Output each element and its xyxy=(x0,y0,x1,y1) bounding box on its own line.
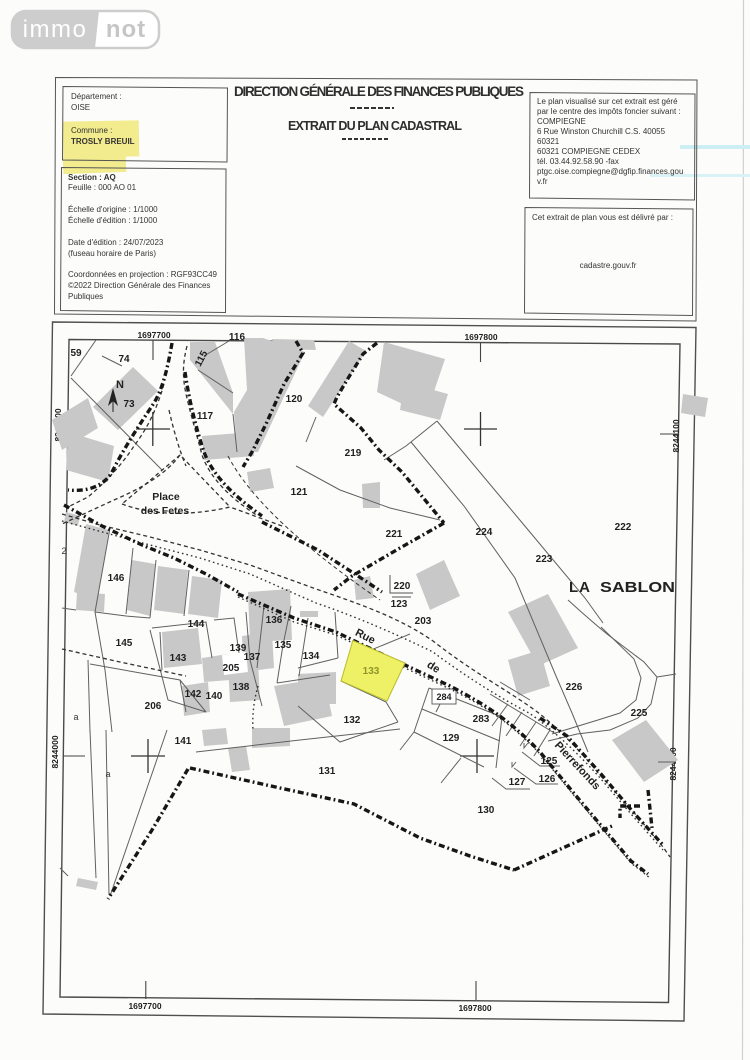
svg-text:74: 74 xyxy=(118,354,130,365)
svg-text:Coordonnées en projection : RG: Coordonnées en projection : RGF93CC49 xyxy=(68,270,218,279)
svg-text:205: 205 xyxy=(223,663,240,674)
svg-text:120: 120 xyxy=(286,394,303,405)
svg-text:not: not xyxy=(106,16,146,43)
svg-text:223: 223 xyxy=(536,554,553,565)
svg-text:126: 126 xyxy=(539,774,556,785)
svg-text:Échelle d'origine : 1/1000: Échelle d'origine : 1/1000 xyxy=(68,205,158,214)
svg-text:60321 COMPIEGNE CEDEX: 60321 COMPIEGNE CEDEX xyxy=(537,147,641,156)
svg-text:137: 137 xyxy=(244,652,261,663)
svg-text:221: 221 xyxy=(386,529,403,540)
svg-text:132: 132 xyxy=(344,715,361,726)
svg-text:283: 283 xyxy=(473,714,490,725)
svg-text:Date d'édition : 24/07/2023: Date d'édition : 24/07/2023 xyxy=(68,238,164,247)
svg-text:N: N xyxy=(116,379,124,391)
svg-text:8244000: 8244000 xyxy=(50,735,60,768)
svg-text:123: 123 xyxy=(391,599,408,610)
svg-text:Publiques: Publiques xyxy=(68,292,103,301)
svg-text:127: 127 xyxy=(509,777,526,788)
svg-text:ptgc.oise.compiegne@dgfip.fina: ptgc.oise.compiegne@dgfip.finances.gou xyxy=(537,167,683,176)
svg-text:v.fr: v.fr xyxy=(537,177,548,186)
svg-text:OISE: OISE xyxy=(71,103,90,112)
svg-text:225: 225 xyxy=(631,708,648,719)
svg-text:8244100: 8244100 xyxy=(671,419,681,452)
svg-text:117: 117 xyxy=(197,411,214,422)
svg-text:220: 220 xyxy=(394,581,411,592)
svg-text:134: 134 xyxy=(303,651,320,662)
svg-text:1697700: 1697700 xyxy=(137,330,170,340)
svg-text:73: 73 xyxy=(123,399,135,410)
svg-text:EXTRAIT DU PLAN CADASTRAL: EXTRAIT DU PLAN CADASTRAL xyxy=(288,119,462,133)
svg-text:206: 206 xyxy=(145,701,162,712)
svg-text:DIRECTION GÉNÉRALE DES FINANCE: DIRECTION GÉNÉRALE DES FINANCES PUBLIQUE… xyxy=(234,84,524,99)
svg-text:226: 226 xyxy=(566,682,583,693)
svg-text:©2022 Direction Générale des F: ©2022 Direction Générale des Finances xyxy=(68,281,210,290)
svg-text:284: 284 xyxy=(436,692,451,702)
svg-text:1697700: 1697700 xyxy=(128,1001,161,1011)
svg-text:141: 141 xyxy=(175,736,192,747)
svg-text:Échelle d'édition : 1/1000: Échelle d'édition : 1/1000 xyxy=(68,216,158,225)
svg-text:1697800: 1697800 xyxy=(464,332,497,342)
svg-text:222: 222 xyxy=(615,522,632,533)
svg-text:LA: LA xyxy=(569,579,590,596)
svg-text:Commune :: Commune : xyxy=(71,126,112,135)
svg-text:Place: Place xyxy=(152,491,180,503)
svg-text:(fuseau horaire de Paris): (fuseau horaire de Paris) xyxy=(68,249,156,258)
svg-text:121: 121 xyxy=(291,487,308,498)
svg-text:145: 145 xyxy=(116,638,133,649)
svg-text:129: 129 xyxy=(443,733,460,744)
svg-text:Département :: Département : xyxy=(71,92,122,101)
svg-text:142: 142 xyxy=(185,689,202,700)
svg-text:133: 133 xyxy=(363,666,380,677)
svg-text:203: 203 xyxy=(415,616,432,627)
svg-text:des Fetes: des Fetes xyxy=(141,505,190,517)
svg-text:par le centre des impôts fonci: par le centre des impôts foncier suivant… xyxy=(537,107,681,116)
svg-text:125: 125 xyxy=(541,756,558,767)
svg-text:135: 135 xyxy=(275,640,292,651)
svg-text:2: 2 xyxy=(61,546,66,556)
svg-text:COMPIEGNE: COMPIEGNE xyxy=(537,117,586,126)
svg-text:116: 116 xyxy=(229,332,246,343)
svg-text:a: a xyxy=(73,712,78,722)
svg-text:130: 130 xyxy=(478,805,495,816)
svg-text:immo: immo xyxy=(23,16,88,43)
svg-text:tél. 03.44.92.58.90 -fax: tél. 03.44.92.58.90 -fax xyxy=(537,157,619,166)
svg-text:140: 140 xyxy=(206,691,223,702)
svg-text:59: 59 xyxy=(70,348,82,359)
svg-text:138: 138 xyxy=(233,682,250,693)
svg-text:6 Rue Winston Churchill C.S. 4: 6 Rue Winston Churchill C.S. 40055 xyxy=(537,127,666,136)
svg-text:SABLON: SABLON xyxy=(600,579,675,596)
svg-text:136: 136 xyxy=(266,615,283,626)
svg-text:Section : AQ: Section : AQ xyxy=(68,173,116,182)
svg-text:60321: 60321 xyxy=(537,137,560,146)
svg-text:1697800: 1697800 xyxy=(458,1003,491,1013)
svg-text:224: 224 xyxy=(476,527,493,538)
svg-text:Le plan visualisé sur cet extr: Le plan visualisé sur cet extrait est gé… xyxy=(537,97,678,106)
svg-text:131: 131 xyxy=(319,766,336,777)
svg-text:Cet extrait de plan vous est d: Cet extrait de plan vous est délivré par… xyxy=(532,213,673,222)
svg-text:a: a xyxy=(105,769,110,779)
svg-text:146: 146 xyxy=(108,573,125,584)
svg-text:cadastre.gouv.fr: cadastre.gouv.fr xyxy=(580,261,637,270)
svg-text:Feuille : 000 AO 01: Feuille : 000 AO 01 xyxy=(68,183,137,192)
svg-text:143: 143 xyxy=(170,653,187,664)
svg-text:144: 144 xyxy=(188,619,205,630)
svg-text:219: 219 xyxy=(345,448,362,459)
svg-text:TROSLY BREUIL: TROSLY BREUIL xyxy=(71,137,135,146)
